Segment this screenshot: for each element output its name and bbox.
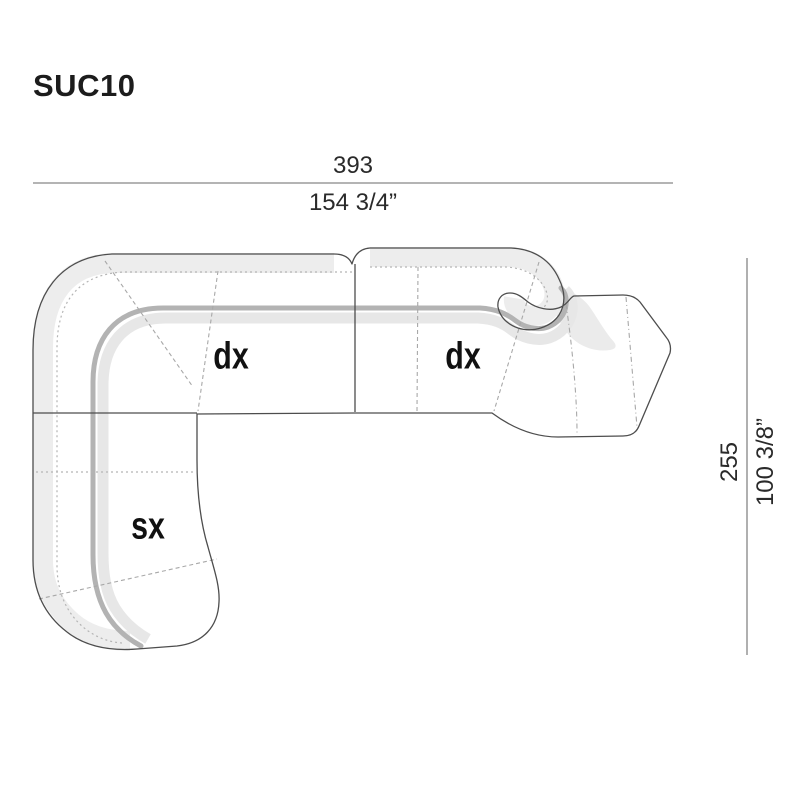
sofa-plan-drawing xyxy=(0,0,800,800)
module-label-dx-1: dx xyxy=(213,336,248,379)
diagram-canvas: SUC10 393 xyxy=(0,0,800,800)
dim-width-inches: 154 3/4” xyxy=(309,189,397,217)
dim-height-inches: 100 3/8” xyxy=(752,418,780,506)
module-label-dx-2: dx xyxy=(445,336,480,379)
module-label-sx: sx xyxy=(131,506,165,549)
dim-height-cm: 255 xyxy=(716,442,744,482)
dim-width-cm: 393 xyxy=(333,152,373,180)
